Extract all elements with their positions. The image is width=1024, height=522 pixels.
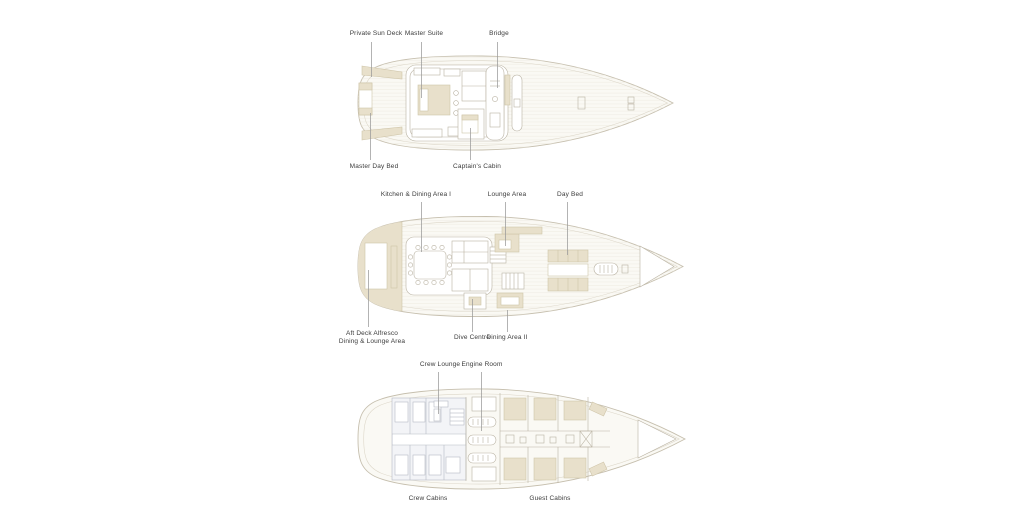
- bow-locker: [640, 246, 674, 287]
- leader-line: [481, 372, 482, 431]
- bridge-structure: [486, 66, 522, 140]
- engine-3: [468, 453, 496, 463]
- leader-line: [421, 42, 422, 98]
- leader-line: [497, 42, 498, 88]
- leader-line: [438, 372, 439, 414]
- upper-deck-plan: [352, 53, 677, 153]
- label-guest-cabins: Guest Cabins: [480, 495, 620, 503]
- leader-line: [470, 128, 471, 160]
- guest-bed: [504, 458, 526, 480]
- dive-centre-area: [464, 293, 486, 309]
- leader-line: [368, 270, 369, 327]
- label-day-bed: Day Bed: [500, 191, 640, 199]
- day-bed-area: [548, 250, 588, 291]
- lower-deck-plan: [352, 385, 690, 493]
- engine-1: [468, 417, 496, 427]
- master-day-bed: [359, 83, 372, 115]
- kitchen-dining-area-1: [406, 237, 492, 295]
- leader-line: [370, 113, 371, 160]
- label-bridge: Bridge: [429, 30, 569, 38]
- guest-bed: [534, 458, 556, 480]
- captains-cabin: [458, 109, 484, 139]
- dining-table: [414, 251, 446, 279]
- aft-alfresco-furniture: [365, 243, 397, 289]
- label-engine-room: Engine Room: [412, 361, 552, 369]
- label-dining-area-2: Dining Area II: [437, 334, 577, 342]
- leader-line: [507, 310, 508, 332]
- engine-2: [468, 435, 496, 445]
- leader-line: [567, 202, 568, 255]
- label-captains-cabin: Captain's Cabin: [407, 163, 547, 171]
- guest-bed: [504, 398, 526, 420]
- guest-bed: [564, 458, 586, 478]
- crew-quarters: [392, 398, 466, 480]
- deck-plans-page: Private Sun Deck Master Suite Bridge Mas…: [0, 0, 1024, 522]
- dining-area-2-furniture: [497, 293, 523, 308]
- leader-line: [472, 299, 473, 332]
- label-crew-cabins: Crew Cabins: [358, 495, 498, 503]
- guest-bed: [564, 401, 586, 420]
- guest-bed: [534, 398, 556, 420]
- leader-line: [505, 202, 506, 246]
- main-deck-plan: [352, 213, 688, 320]
- leader-line: [421, 202, 422, 252]
- leader-line: [371, 42, 372, 77]
